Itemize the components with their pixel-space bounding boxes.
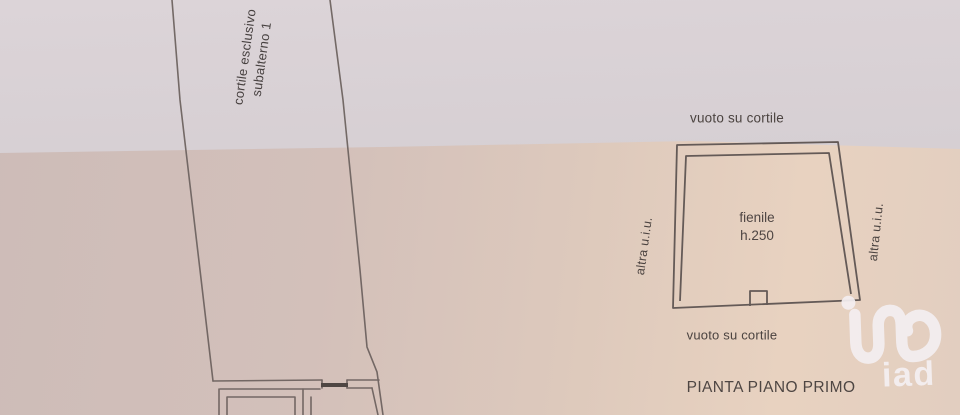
courtyard-right-boundary-line [330,0,383,415]
courtyard-left-boundary-line [172,0,213,381]
void-on-courtyard-label-bottom: vuoto su cortile [687,328,778,343]
iad-logo-text: iad [881,355,936,396]
building-partition-walls [219,388,378,415]
floor-plan-drawing [0,0,960,415]
iad-logo: iad [838,280,960,414]
fienile-room-label: fienile h.250 [739,209,774,245]
void-on-courtyard-label-top: vuoto su cortile [690,111,784,126]
room-name: fienile [739,209,774,227]
building-inner-wall [220,388,372,389]
plan-title: PIANTA PIANO PRIMO [687,379,856,397]
building-outer-wall [213,380,379,381]
floor-plan-photo: cortile esclusivo subalterno 1 vuoto su … [0,0,960,415]
room-height: h.250 [739,227,774,245]
